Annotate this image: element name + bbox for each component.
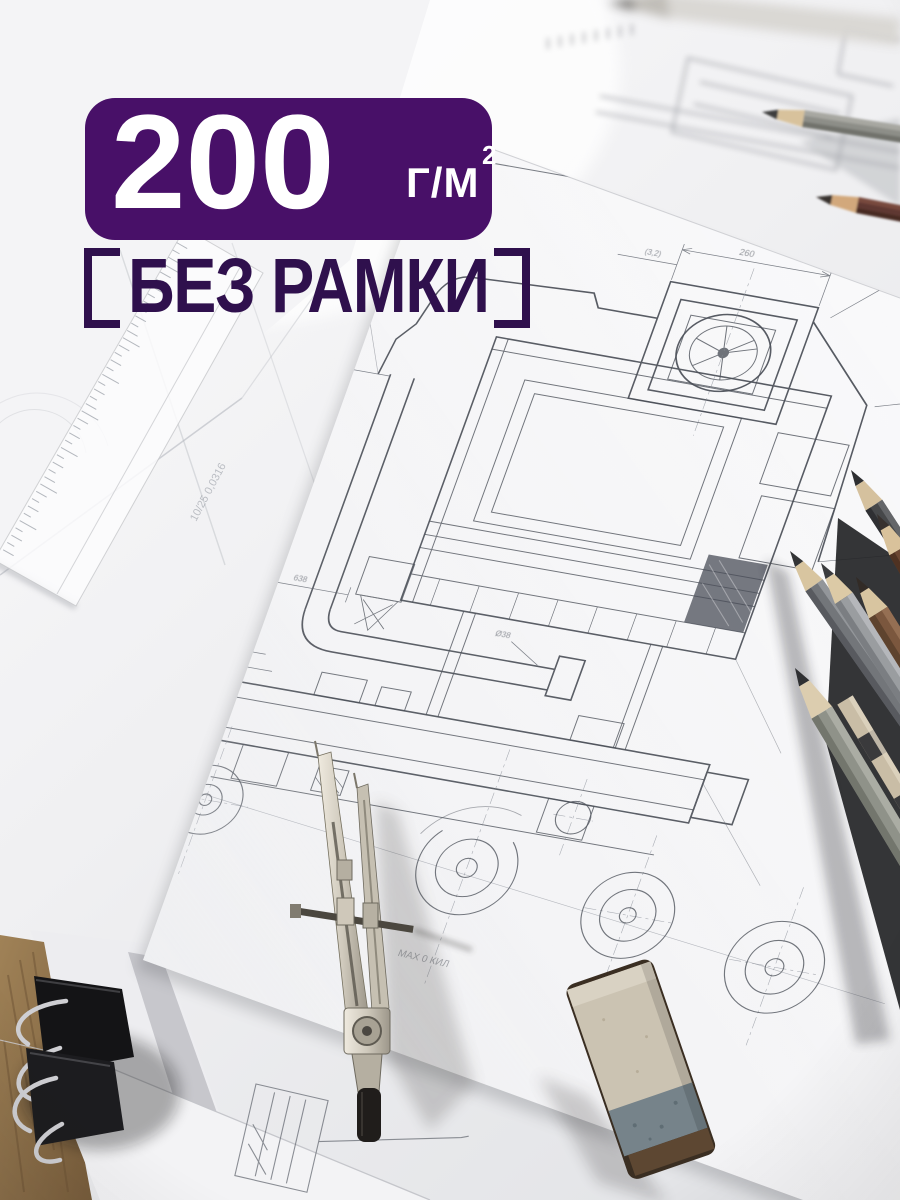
no-frame-text: БЕЗ РАМКИ bbox=[128, 248, 489, 329]
badge-unit-exponent: 2 bbox=[482, 142, 496, 168]
weight-badge: 200 Г/М 2 bbox=[85, 98, 492, 240]
no-frame-label: [ БЕЗ РАМКИ ] bbox=[84, 246, 530, 330]
badge-value: 200 bbox=[111, 96, 335, 230]
bracket-left-icon: [ bbox=[84, 248, 120, 328]
bracket-right-icon: ] bbox=[494, 248, 530, 328]
product-image: 10/25 0,0316 ЛЮМ ОЛУ 0,0Л0 bbox=[0, 0, 900, 1200]
badge-unit: Г/М bbox=[406, 162, 479, 204]
